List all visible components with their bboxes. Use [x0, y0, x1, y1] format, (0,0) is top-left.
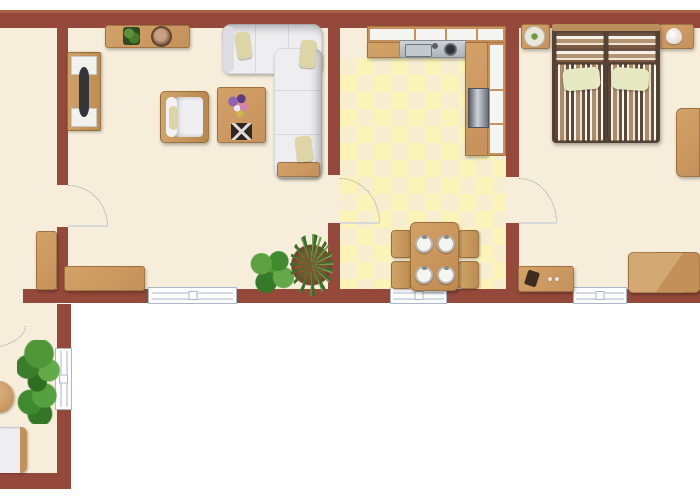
cabinet-knob: [548, 277, 552, 281]
cabinet-cell: [447, 29, 476, 40]
wall-bottom-1: [23, 289, 148, 303]
leafy-plant-icon: [247, 250, 295, 296]
window-bedroom: [573, 287, 627, 304]
portrait-photo-icon: [151, 26, 172, 47]
place-setting-1: [415, 235, 433, 253]
sink-basin-icon: [405, 44, 432, 57]
dresser: [628, 252, 700, 293]
door-leaf-living-room: [68, 225, 108, 227]
dining-chair-2: [391, 261, 412, 289]
dining-chair-1: [391, 230, 412, 258]
dining-chair-4: [458, 261, 479, 289]
shell-lamp-icon: [666, 28, 682, 44]
cabinet-cell: [490, 91, 503, 123]
wardrobe: [676, 108, 700, 177]
game-board-icon: [231, 123, 252, 140]
tall-plant-icon: [17, 340, 61, 424]
window-living-room: [148, 287, 237, 304]
shelf-plant-icon: [123, 27, 140, 45]
cabinet-cell: [490, 125, 503, 153]
floor-plan: [0, 0, 700, 500]
spiky-plant-icon: [290, 234, 333, 296]
door-leaf-kitchen: [340, 222, 380, 224]
armchair: [160, 91, 209, 143]
door-leaf-bedroom: [519, 222, 557, 224]
cabinet-cell: [370, 29, 414, 40]
bench-back: [20, 427, 27, 473]
corner-sofa-end-table: [277, 162, 320, 177]
corner-sofa-armrest-left: [223, 26, 234, 72]
tall-cabinet: [36, 231, 57, 290]
bench-sofa: [0, 427, 27, 473]
sofa-pillow-3: [295, 135, 314, 163]
bed-green-pillow-right: [611, 67, 649, 92]
cabinet-cell: [478, 29, 503, 40]
cabinet-cell: [490, 45, 503, 89]
dining-chair-3: [458, 230, 479, 258]
stove-icon: [468, 88, 489, 128]
armchair-seat: [175, 97, 203, 137]
flower-bouquet-icon: [225, 92, 252, 119]
place-setting-2: [437, 235, 455, 253]
bed-headboard: [552, 24, 660, 31]
faucet-icon: [432, 43, 438, 49]
sofa-pillow-2: [299, 39, 317, 68]
cabinet-knob: [555, 277, 559, 281]
kitchen-cabinets-right: [487, 42, 506, 156]
sink-round-basin-icon: [444, 43, 457, 56]
wall-kitchen-east-upper: [506, 28, 519, 177]
armchair-pillow: [169, 106, 178, 130]
sideboard: [64, 266, 145, 291]
wall-shelf: [105, 25, 190, 48]
place-setting-4: [437, 266, 455, 284]
wall-kitchen-west-upper: [328, 28, 340, 175]
bed-green-pillow-left: [562, 66, 601, 91]
kitchen-sink: [399, 40, 467, 58]
bed-striped-pillow-left: [556, 32, 604, 63]
place-setting-3: [415, 266, 433, 284]
cabinet-cell: [416, 29, 445, 40]
wall-corridor-bottom: [0, 473, 71, 489]
tv-screen: [79, 67, 89, 117]
tv-sideboard: [67, 52, 101, 131]
nightstand-plant-plate-icon: [524, 26, 545, 47]
bed-striped-pillow-right: [608, 32, 656, 63]
